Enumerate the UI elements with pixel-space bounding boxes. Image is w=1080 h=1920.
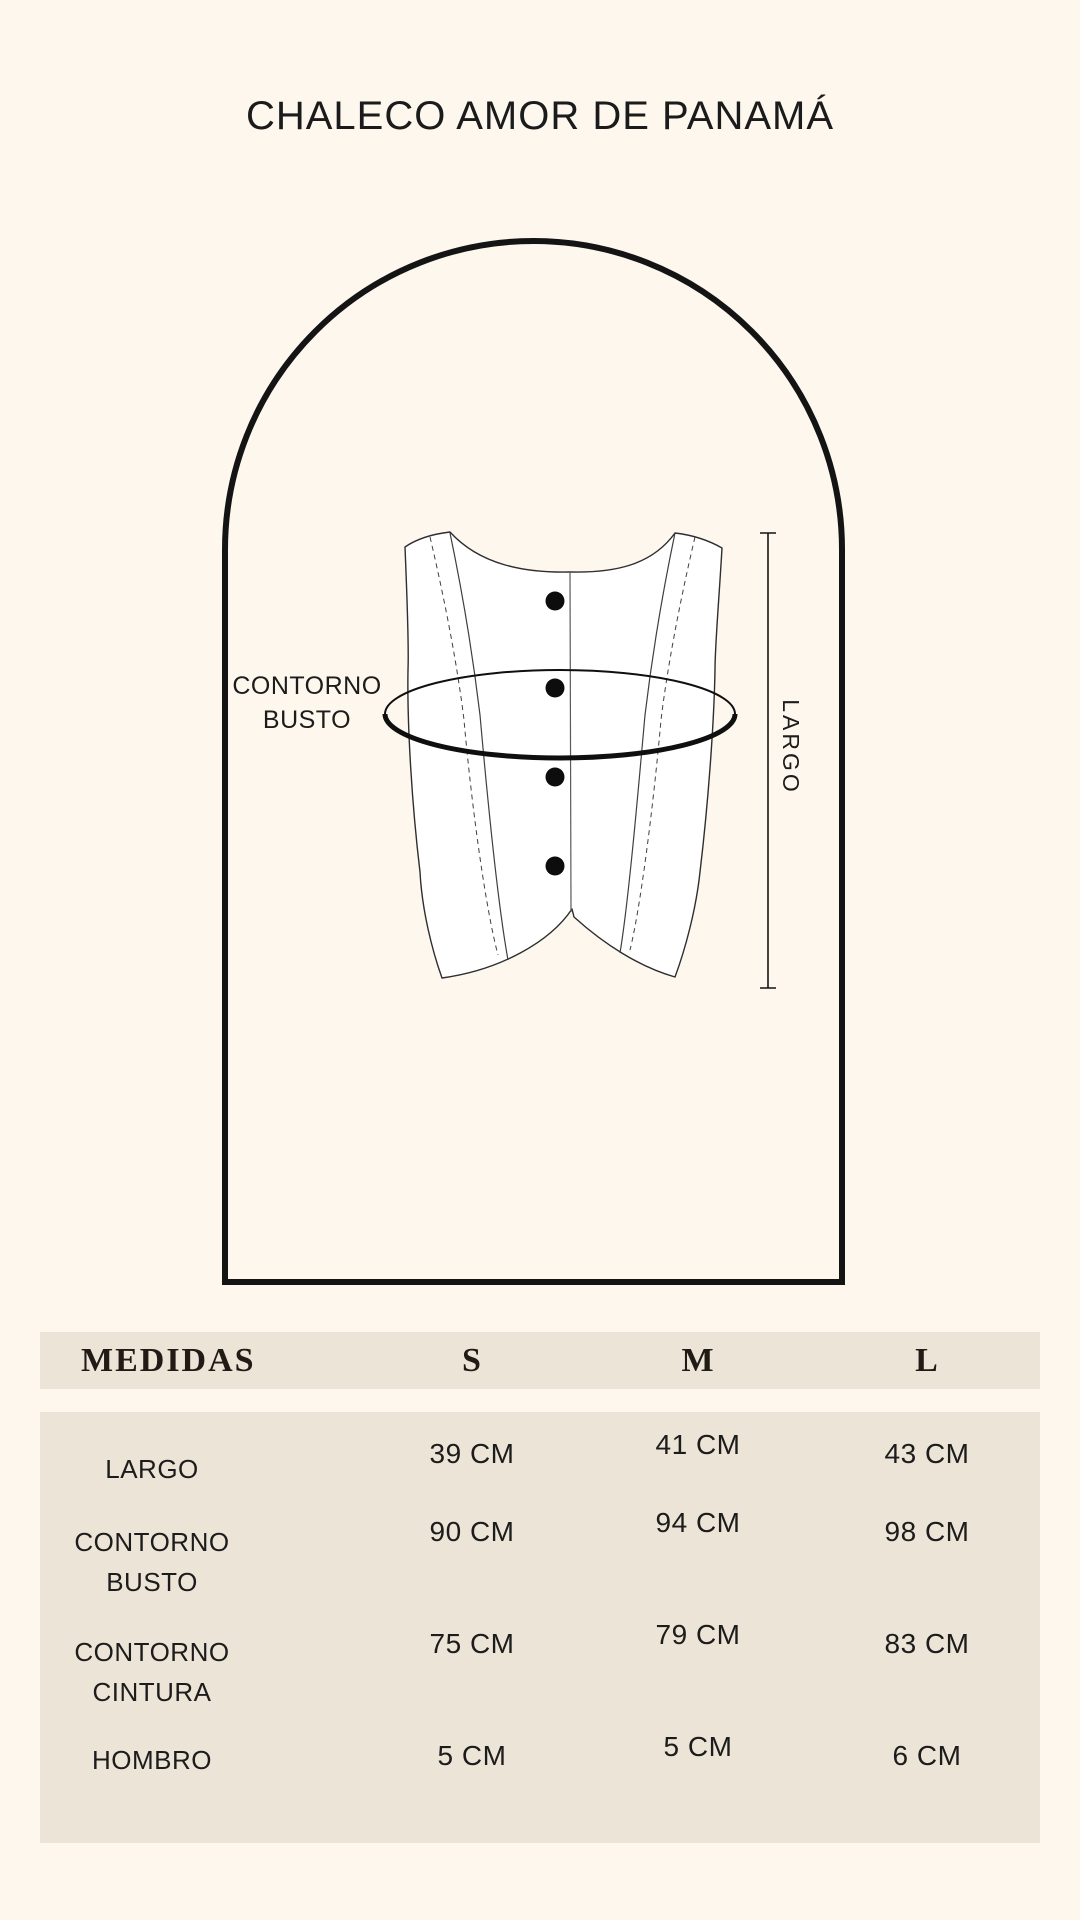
row-label-line: LARGO — [105, 1449, 199, 1489]
bust-measure-label-line1: CONTORNO — [221, 669, 393, 703]
value-m: 41 CM — [656, 1429, 741, 1461]
value-l: 43 CM — [885, 1438, 970, 1470]
value-s: 39 CM — [430, 1438, 515, 1470]
table-header-size-l: L — [915, 1342, 939, 1380]
value-s: 5 CM — [438, 1740, 507, 1772]
row-label-line: CONTORNO — [74, 1632, 229, 1672]
row-label-line: BUSTO — [74, 1562, 229, 1602]
value-m: 79 CM — [656, 1619, 741, 1651]
value-s: 75 CM — [430, 1628, 515, 1660]
row-label-line: CONTORNO — [74, 1522, 229, 1562]
value-m: 5 CM — [664, 1731, 733, 1763]
row-label: LARGO — [105, 1449, 199, 1489]
table-header-measures: MEDIDAS — [81, 1342, 256, 1380]
button-dot — [546, 679, 565, 698]
bust-measure-label: CONTORNO BUSTO — [221, 669, 393, 737]
value-s: 90 CM — [430, 1516, 515, 1548]
row-label-line: HOMBRO — [92, 1740, 212, 1780]
vest-diagram: LARGO — [370, 505, 820, 1005]
button-dot — [546, 768, 565, 787]
bust-measure-label-line2: BUSTO — [221, 703, 393, 737]
length-measure-line — [760, 533, 776, 988]
table-header: MEDIDAS S M L — [40, 1332, 1040, 1389]
table-header-size-m: M — [681, 1342, 714, 1380]
value-l: 83 CM — [885, 1628, 970, 1660]
row-label: CONTORNO CINTURA — [74, 1632, 229, 1712]
button-dot — [546, 857, 565, 876]
length-measure-label: LARGO — [778, 699, 804, 795]
button-dot — [546, 592, 565, 611]
row-label: HOMBRO — [92, 1740, 212, 1780]
value-m: 94 CM — [656, 1507, 741, 1539]
row-label: CONTORNO BUSTO — [74, 1522, 229, 1602]
value-l: 6 CM — [893, 1740, 962, 1772]
page-title: CHALECO AMOR DE PANAMÁ — [0, 94, 1080, 139]
size-guide-page: CHALECO AMOR DE PANAMÁ LARGO CONTORNO BU… — [0, 0, 1080, 1920]
row-label-line: CINTURA — [74, 1672, 229, 1712]
table-body: LARGO 39 CM 41 CM 43 CM CONTORNO BUSTO 9… — [40, 1412, 1040, 1843]
table-header-size-s: S — [462, 1342, 482, 1380]
value-l: 98 CM — [885, 1516, 970, 1548]
